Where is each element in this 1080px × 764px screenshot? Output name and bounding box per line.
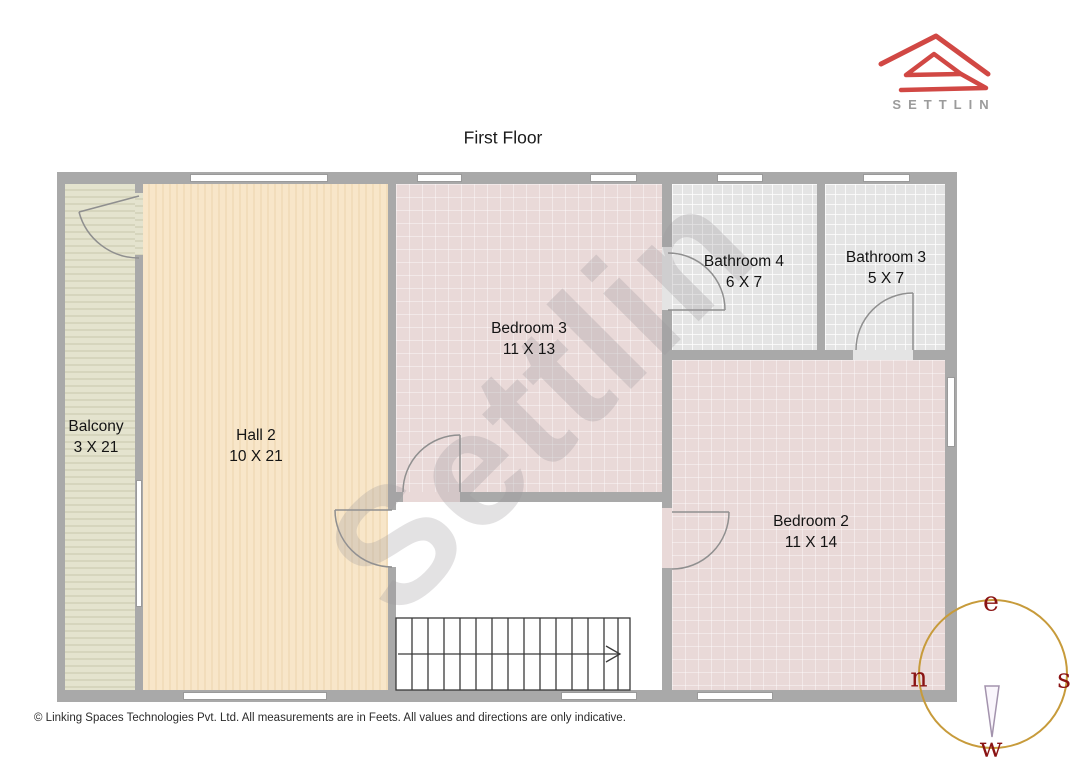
compass-needle-icon: [985, 686, 999, 737]
wall-hall-landing: [388, 184, 396, 690]
room-dims: 10 X 21: [229, 446, 282, 467]
wall-balcony-hall: [135, 184, 143, 690]
window-right-bedroom2: [947, 377, 955, 447]
room-name: Balcony: [68, 416, 123, 437]
window-top-hall: [190, 174, 328, 182]
room-label-bathroom3: Bathroom 3 5 X 7: [846, 247, 926, 289]
wall-outer-left: [57, 172, 65, 702]
door-opening-bathroom4: [662, 247, 672, 310]
room-name: Hall 2: [229, 425, 282, 446]
room-name: Bathroom 4: [704, 251, 784, 272]
window-balcony-hall: [136, 480, 142, 607]
window-top-bathroom4: [717, 174, 763, 182]
compass-west-label: w: [979, 733, 1002, 764]
door-opening-bedroom3: [403, 492, 460, 502]
room-dims: 3 X 21: [68, 437, 123, 458]
window-bottom-bedroom2: [697, 692, 773, 700]
copyright-text: © Linking Spaces Technologies Pvt. Ltd. …: [34, 712, 626, 724]
window-top-bedroom3-right: [590, 174, 637, 182]
compass-north-label: n: [910, 663, 927, 694]
door-opening-hall: [388, 510, 396, 567]
room-label-bathroom4: Bathroom 4 6 X 7: [704, 251, 784, 293]
room-dims: 6 X 7: [704, 272, 784, 293]
compass-east-label: e: [983, 587, 999, 618]
window-top-bedroom3-left: [417, 174, 462, 182]
door-opening-bathroom3: [853, 350, 913, 360]
room-name: Bathroom 3: [846, 247, 926, 268]
floor-plan-page: First Floor SETTLIN: [0, 0, 1080, 764]
window-bottom-landing: [561, 692, 637, 700]
room-dims: 11 X 14: [773, 532, 849, 553]
room-name: Bedroom 2: [773, 511, 849, 532]
room-label-bedroom2: Bedroom 2 11 X 14: [773, 511, 849, 553]
room-dims: 5 X 7: [846, 268, 926, 289]
window-bottom-hall: [183, 692, 327, 700]
door-opening-balcony: [135, 193, 143, 255]
room-label-balcony: Balcony 3 X 21: [68, 416, 123, 458]
room-label-hall2: Hall 2 10 X 21: [229, 425, 282, 467]
window-top-bathroom3: [863, 174, 910, 182]
compass-south-label: s: [1057, 664, 1071, 695]
page-title: First Floor: [464, 128, 543, 149]
room-name: Bedroom 3: [491, 318, 567, 339]
room-label-bedroom3: Bedroom 3 11 X 13: [491, 318, 567, 360]
door-opening-bedroom2: [662, 508, 672, 568]
settlin-brand-text: SETTLIN: [892, 97, 995, 112]
wall-bath4-bath3: [817, 184, 825, 350]
landing-floor: [396, 502, 662, 690]
room-dims: 11 X 13: [491, 339, 567, 360]
